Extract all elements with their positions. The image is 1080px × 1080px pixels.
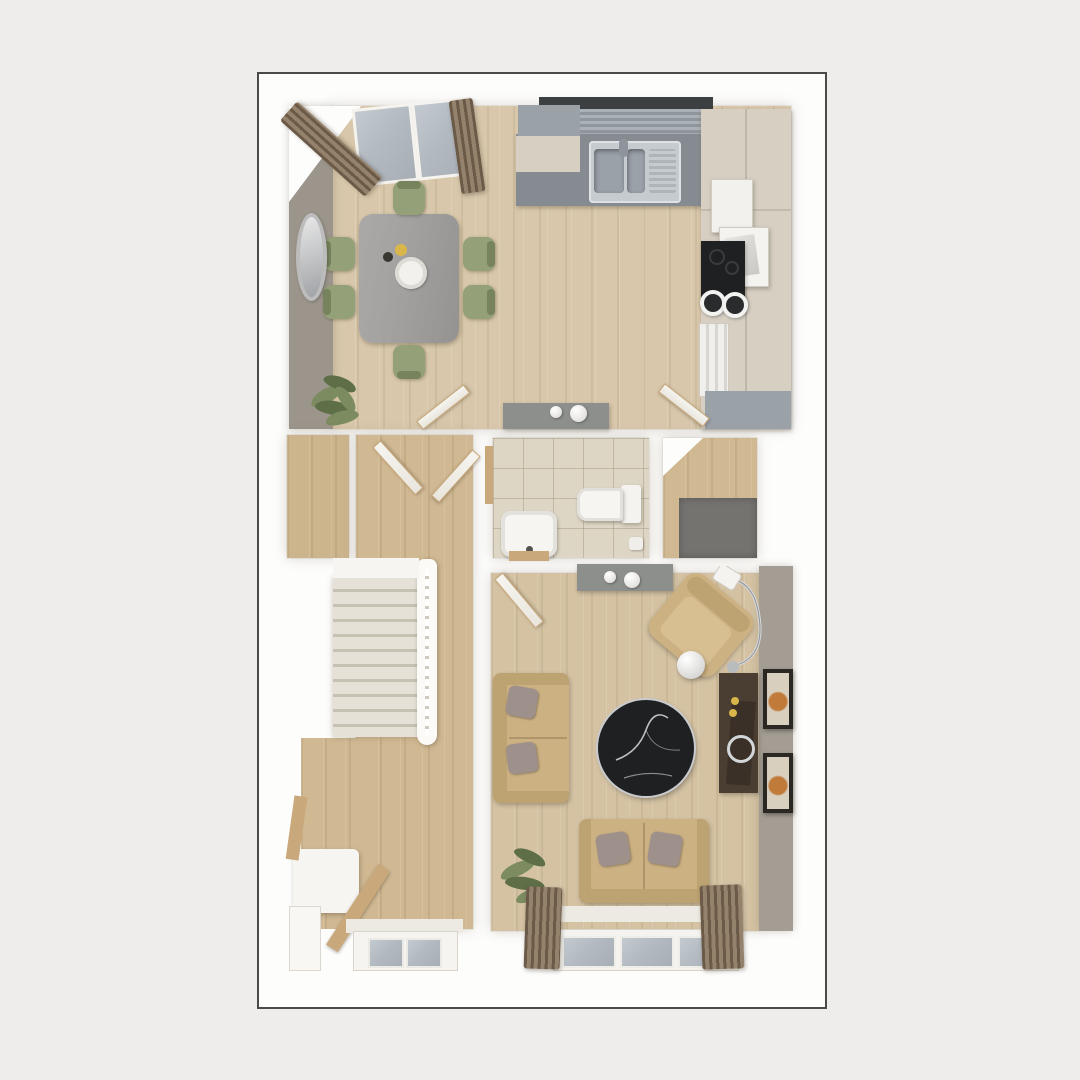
loveseat-back — [579, 889, 709, 903]
wc-door — [485, 446, 493, 504]
balustrade-spindles — [425, 569, 429, 735]
front-door-pane — [406, 938, 442, 968]
hall-closet — [289, 906, 321, 971]
sofa-left — [493, 673, 569, 803]
gold-candle — [729, 709, 737, 717]
wall-cabinet-gray — [518, 105, 580, 137]
microwave-unit — [711, 179, 753, 233]
loveseat-bottom — [579, 819, 709, 903]
sofa-arm — [493, 791, 569, 803]
plant-dining — [305, 371, 363, 429]
round-wall-mirror — [296, 213, 327, 301]
dining-chair-top — [393, 181, 425, 215]
dining-chair-left-1 — [323, 237, 355, 271]
front-door-pane — [368, 938, 404, 968]
sideboard-vase — [550, 406, 562, 418]
burner — [709, 249, 725, 265]
sofa-cushion — [505, 685, 540, 720]
toilet-bowl — [577, 488, 623, 521]
curtain-living-right — [700, 884, 745, 969]
wall-art-frame — [763, 753, 793, 813]
front-door — [353, 931, 458, 971]
curtain-living-left — [524, 886, 563, 969]
pot-on-hob — [722, 292, 748, 318]
sofa-cushion — [505, 741, 538, 774]
dining-chair-bottom — [393, 345, 425, 379]
console-vase — [624, 572, 640, 588]
gold-candle — [731, 697, 739, 705]
loveseat-cushion — [647, 831, 684, 868]
wall-art-frame — [763, 669, 793, 729]
dishwasher-front — [699, 323, 729, 397]
loveseat-cushion — [595, 831, 632, 868]
sofa-arm — [493, 673, 569, 685]
marble-veins — [598, 700, 694, 796]
round-side-table — [677, 651, 705, 679]
chrome-ring-decor — [727, 735, 755, 763]
sideboard-vase — [570, 405, 587, 422]
table-decor-gold-cup — [395, 244, 407, 256]
dining-chair-right-2 — [463, 285, 495, 319]
arc-floor-lamp — [691, 566, 781, 676]
base-cabinet-cream — [516, 136, 580, 172]
sink-tap — [619, 139, 628, 157]
stair-balustrade — [417, 559, 437, 745]
sofa-seat-split — [509, 737, 567, 739]
loveseat-seat-split — [643, 823, 645, 889]
entry-console-table — [293, 849, 359, 913]
window-pane — [620, 936, 674, 968]
dining-chair-left-2 — [323, 285, 355, 319]
table-centre-plate — [395, 257, 427, 289]
coffee-table — [598, 700, 694, 796]
media-sideboard — [719, 673, 758, 793]
stair-landing — [333, 558, 419, 578]
basin-wood-stand — [509, 551, 549, 561]
sink-drainer — [649, 149, 676, 193]
dining-chair-right-1 — [463, 237, 495, 271]
console-vase — [604, 571, 616, 583]
toilet-roll-holder — [629, 537, 643, 550]
hall-alcove-floor — [287, 435, 349, 558]
kitchen-gray-base-unit — [705, 391, 791, 429]
loveseat-arm — [579, 819, 591, 903]
window-pane — [562, 936, 616, 968]
floorplan-render — [0, 0, 1080, 1080]
kitchen-sink — [589, 141, 681, 203]
floorplan-card — [257, 72, 827, 1009]
entry-door-mat — [679, 498, 757, 558]
sink-bowl — [627, 149, 645, 193]
table-decor-dark-cup — [383, 252, 393, 262]
staircase — [333, 577, 419, 737]
sofa-back — [493, 673, 507, 803]
burner — [725, 261, 739, 275]
toilet-cistern — [621, 485, 641, 523]
